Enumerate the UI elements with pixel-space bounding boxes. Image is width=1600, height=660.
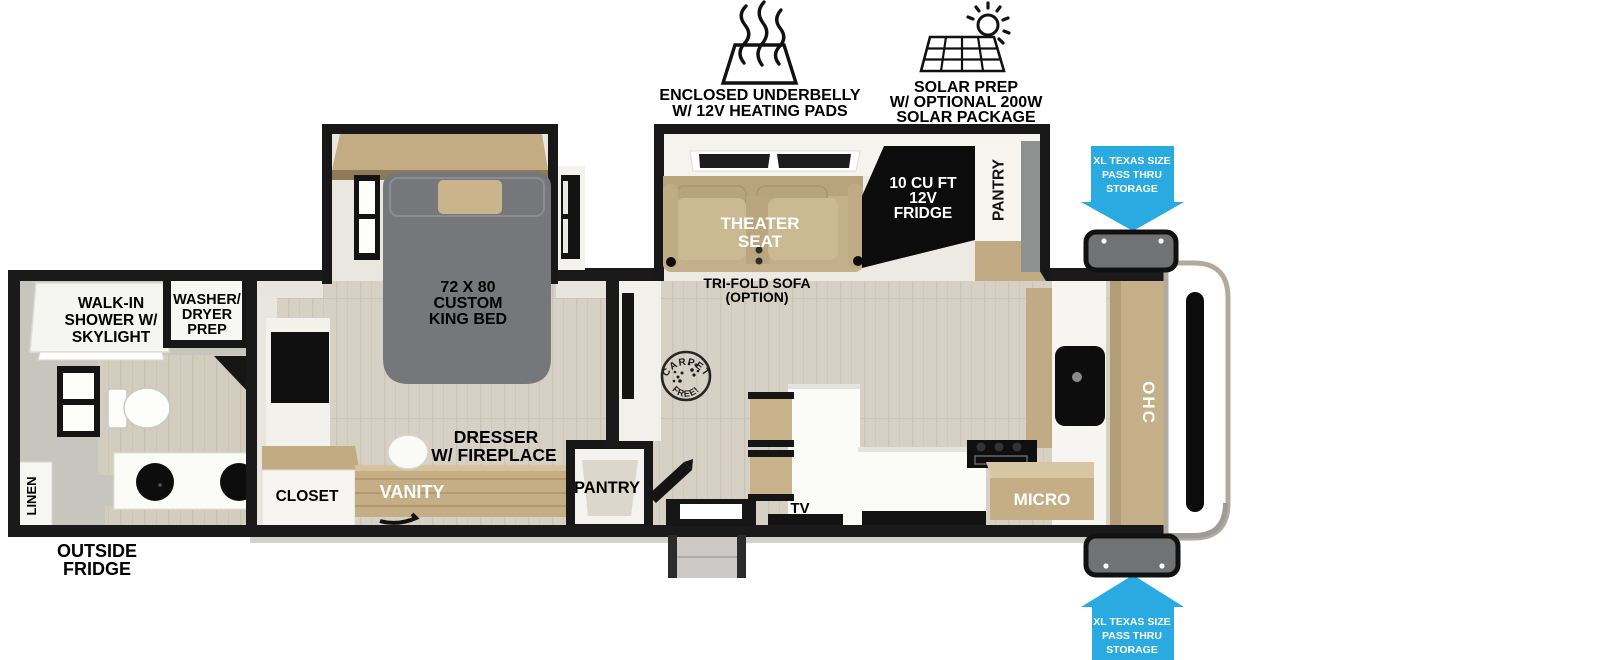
svg-text:SHOWER W/: SHOWER W/ [65, 312, 159, 329]
svg-text:TV: TV [790, 500, 809, 517]
svg-text:SOLAR PACKAGE: SOLAR PACKAGE [896, 109, 1036, 126]
svg-text:OUTSIDE: OUTSIDE [57, 541, 137, 561]
svg-text:FRIDGE: FRIDGE [63, 559, 131, 579]
svg-text:CLOSET: CLOSET [276, 488, 339, 505]
svg-text:72 X 80: 72 X 80 [440, 279, 495, 296]
svg-text:CUSTOM: CUSTOM [433, 295, 502, 312]
svg-text:ENCLOSED UNDERBELLY: ENCLOSED UNDERBELLY [659, 87, 861, 104]
svg-text:FRIDGE: FRIDGE [894, 205, 953, 222]
svg-text:W/ 12V HEATING PADS: W/ 12V HEATING PADS [672, 103, 848, 120]
svg-text:OHC: OHC [1139, 381, 1158, 425]
svg-text:SEAT: SEAT [738, 232, 783, 251]
svg-text:LINEN: LINEN [24, 477, 39, 516]
svg-text:VANITY: VANITY [380, 482, 445, 502]
svg-text:DRYER: DRYER [182, 307, 233, 323]
svg-text:PREP: PREP [187, 322, 227, 338]
svg-text:STORAGE: STORAGE [1106, 644, 1158, 656]
svg-text:MICRO: MICRO [1014, 490, 1071, 509]
svg-text:W/ FIREPLACE: W/ FIREPLACE [431, 445, 556, 465]
svg-text:(OPTION): (OPTION) [726, 289, 789, 305]
svg-text:PANTRY: PANTRY [574, 479, 640, 497]
svg-text:KING BED: KING BED [429, 311, 507, 328]
svg-text:DRESSER: DRESSER [454, 427, 539, 447]
svg-text:SKYLIGHT: SKYLIGHT [72, 329, 151, 346]
svg-text:PANTRY: PANTRY [991, 158, 1008, 221]
svg-text:THEATER: THEATER [720, 214, 799, 233]
svg-text:XL TEXAS SIZE: XL TEXAS SIZE [1093, 616, 1170, 628]
svg-text:WALK-IN: WALK-IN [78, 295, 144, 312]
svg-text:WASHER/: WASHER/ [173, 292, 241, 308]
svg-text:PASS THRU: PASS THRU [1102, 169, 1162, 181]
svg-text:XL TEXAS SIZE: XL TEXAS SIZE [1093, 155, 1170, 167]
svg-text:STORAGE: STORAGE [1106, 183, 1158, 195]
svg-text:PASS THRU: PASS THRU [1102, 630, 1162, 642]
